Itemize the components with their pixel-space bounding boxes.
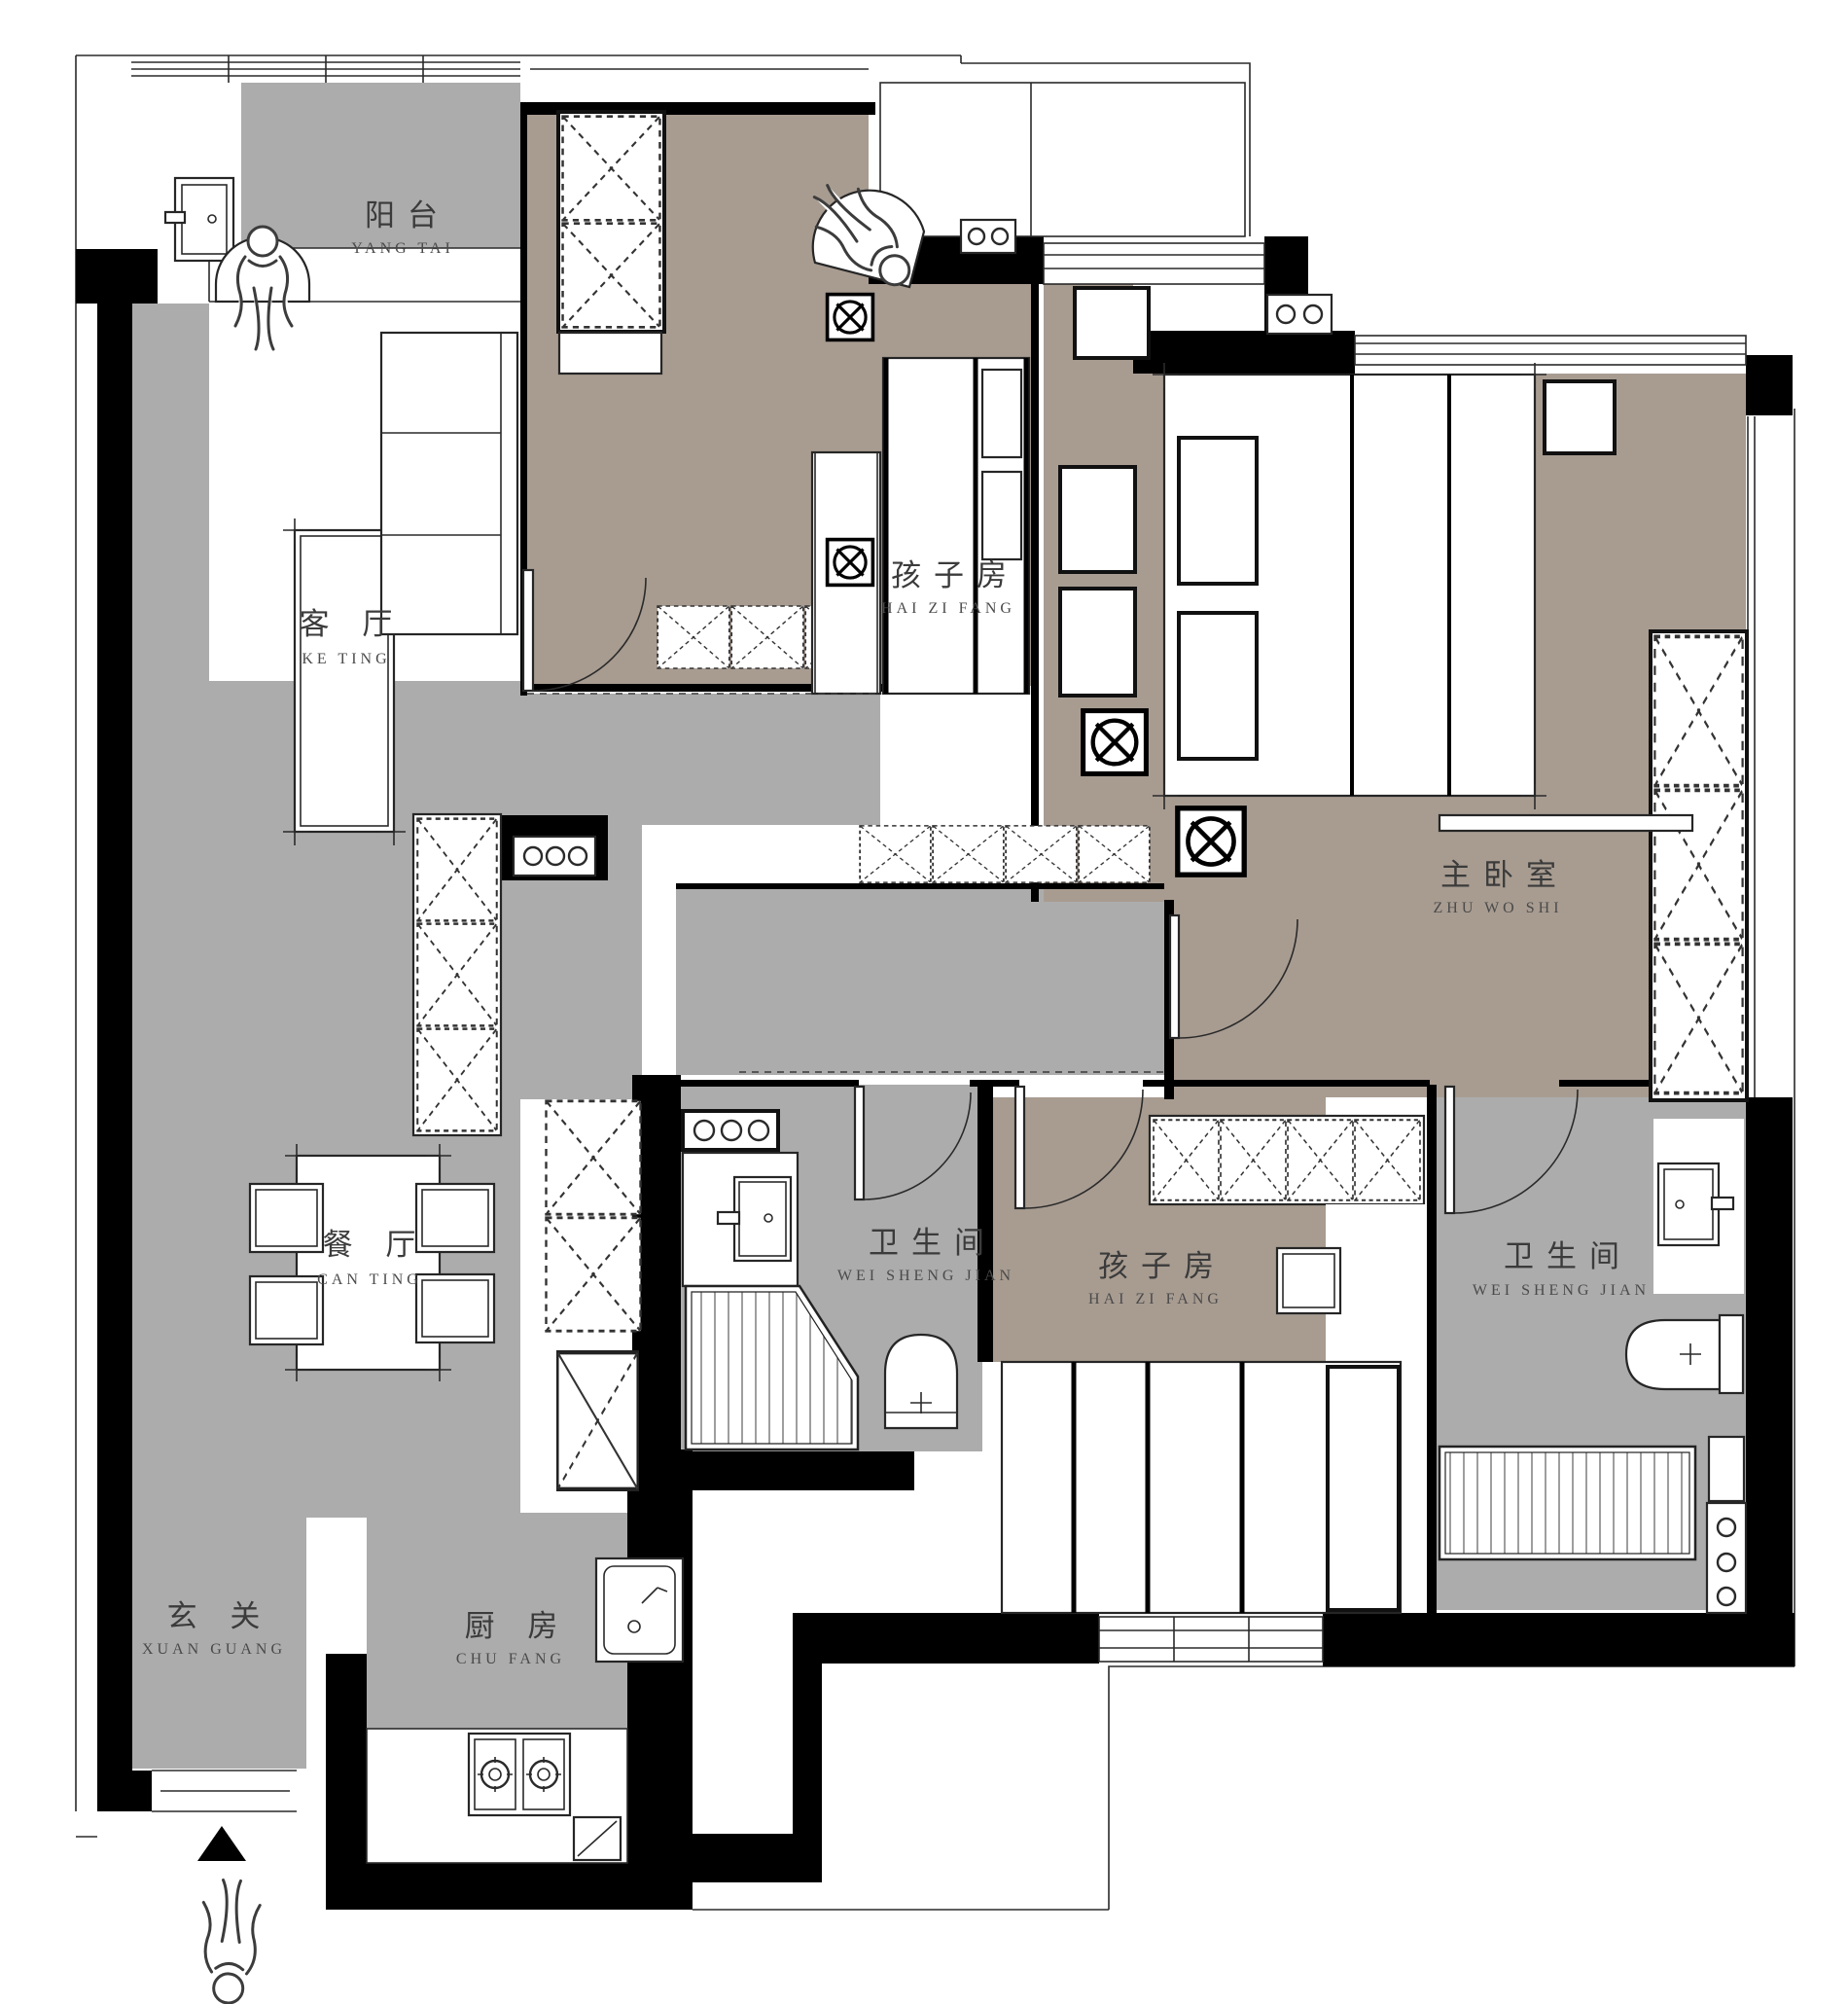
living-room-label-cn: 客 厅 bbox=[300, 607, 406, 641]
kids-room2-label-cn: 孩子房 bbox=[1098, 1249, 1226, 1283]
master-bed bbox=[1153, 363, 1546, 809]
room-label-master-bedroom: 主卧室 ZHU WO SHI bbox=[1433, 858, 1569, 916]
kitchen-sink-icon bbox=[596, 1558, 683, 1662]
room-label-kids-room-2: 孩子房 HAI ZI FANG bbox=[1088, 1249, 1226, 1307]
ceiling-fixture-icon-3 bbox=[1084, 711, 1147, 774]
room-label-living-room: 客 厅 KE TING bbox=[300, 607, 406, 667]
entry-label-py: XUAN GUANG bbox=[142, 1641, 286, 1658]
kids-room1-label-cn: 孩子房 bbox=[891, 558, 1019, 592]
kitchen-cabinet-column bbox=[547, 1101, 641, 1489]
master-bedroom-label-cn: 主卧室 bbox=[1440, 858, 1569, 892]
master-rug bbox=[1439, 815, 1692, 831]
kitchen-label-py: CHU FANG bbox=[456, 1651, 565, 1667]
bathroom2-label-cn: 卫生间 bbox=[1504, 1239, 1632, 1273]
balcony-label-cn: 阳台 bbox=[365, 198, 450, 233]
master-nightstand-left-2 bbox=[1060, 589, 1135, 696]
bathroom1-label-cn: 卫生间 bbox=[869, 1226, 997, 1260]
master-nightstand-right bbox=[1545, 381, 1615, 453]
toilet-icon-2 bbox=[1626, 1315, 1743, 1393]
bathroom2-side-vanity bbox=[1707, 1437, 1746, 1613]
kitchen-counter-box bbox=[574, 1817, 621, 1860]
master-top-window bbox=[1044, 243, 1264, 284]
room-label-balcony: 阳台 YANG TAI bbox=[351, 198, 454, 257]
room-label-dining-room: 餐 厅 CAN TING bbox=[317, 1228, 428, 1288]
socket-box-1 bbox=[961, 220, 1015, 253]
kids-room2-bed bbox=[1002, 1362, 1401, 1613]
master-nightstand-top bbox=[1075, 288, 1149, 358]
ceiling-fixture-icon-2 bbox=[828, 540, 873, 586]
master-top-window-2 bbox=[1355, 336, 1746, 365]
kids-room2-desk bbox=[1277, 1248, 1340, 1313]
toilet-icon-1 bbox=[885, 1335, 957, 1428]
master-wardrobe bbox=[1651, 631, 1747, 1100]
stove-icon bbox=[469, 1734, 570, 1815]
kids-room2-wardrobe bbox=[1150, 1116, 1424, 1204]
bathroom2-shower bbox=[1439, 1447, 1695, 1559]
balcony-window bbox=[131, 55, 869, 83]
hallway-cabinet bbox=[860, 826, 1150, 882]
entrance-arrow-icon bbox=[197, 1826, 246, 1861]
kitchen-tall-cabinet bbox=[413, 814, 501, 1135]
ac-platform bbox=[880, 83, 1245, 236]
bathroom2-label-py: WEI SHENG JIAN bbox=[1473, 1282, 1650, 1299]
ceiling-fixture-icon-4 bbox=[1178, 808, 1244, 875]
ceiling-fixture-icon-1 bbox=[828, 295, 873, 340]
entry-label-cn: 玄 关 bbox=[167, 1599, 273, 1633]
kitchen-stub-counter bbox=[514, 837, 595, 876]
dining-room-label-cn: 餐 厅 bbox=[323, 1228, 429, 1262]
dining-table bbox=[285, 1144, 451, 1381]
bathroom2-vanity bbox=[1653, 1119, 1744, 1294]
dining-room-label-py: CAN TING bbox=[317, 1271, 422, 1288]
floor-plan: 阳台 YANG TAI 客 厅 KE TING 孩子房 HAI ZI FANG … bbox=[0, 0, 1848, 2004]
entry-door-sill bbox=[152, 1771, 297, 1811]
living-room-label-py: KE TING bbox=[302, 651, 390, 667]
kids-room1-wardrobe bbox=[558, 112, 664, 374]
bathroom1-label-py: WEI SHENG JIAN bbox=[837, 1268, 1014, 1284]
kitchen-label-cn: 厨 房 bbox=[465, 1609, 571, 1643]
kids-room2-label-py: HAI ZI FANG bbox=[1088, 1291, 1223, 1307]
corridor-floor bbox=[520, 694, 880, 825]
kids-room1-label-py: HAI ZI FANG bbox=[881, 600, 1015, 617]
master-bedroom-label-py: ZHU WO SHI bbox=[1433, 900, 1562, 916]
room-label-kitchen: 厨 房 CHU FANG bbox=[456, 1609, 570, 1667]
floor-plan-canvas: 阳台 YANG TAI 客 厅 KE TING 孩子房 HAI ZI FANG … bbox=[0, 0, 1848, 2004]
master-right-window bbox=[1748, 416, 1755, 1097]
socket-box-2 bbox=[1267, 295, 1332, 334]
master-nightstand-left-1 bbox=[1060, 467, 1135, 572]
hallway-floor bbox=[676, 888, 1172, 1075]
person-entrance bbox=[198, 1879, 262, 2004]
kids-room2-bottom-window bbox=[1099, 1617, 1323, 1662]
room-label-kids-room-1: 孩子房 HAI ZI FANG bbox=[881, 558, 1019, 617]
sofa bbox=[381, 333, 517, 634]
balcony-label-py: YANG TAI bbox=[351, 240, 454, 257]
washing-machine-icon bbox=[165, 178, 233, 261]
